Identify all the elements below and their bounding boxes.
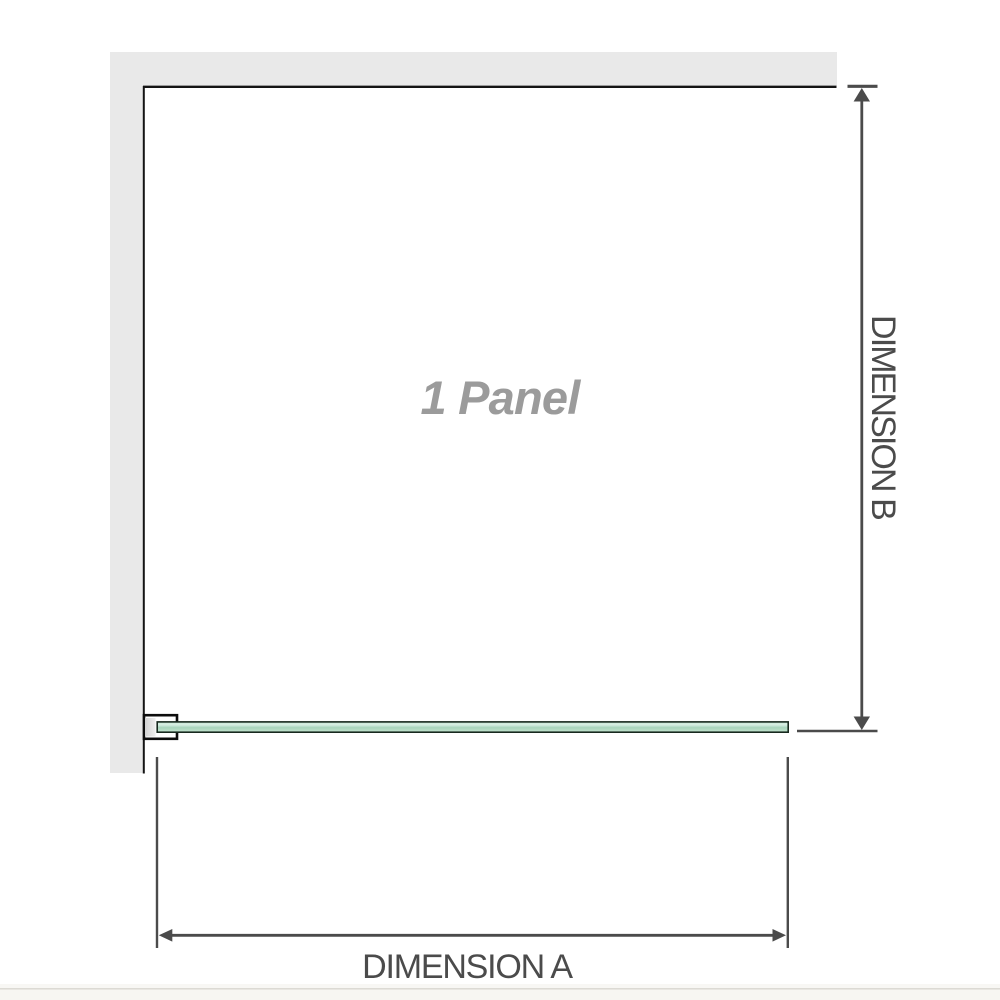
svg-text:DIMENSION B: DIMENSION B (864, 315, 902, 519)
svg-text:1 Panel: 1 Panel (421, 371, 582, 424)
svg-text:DIMENSION A: DIMENSION A (362, 948, 573, 986)
